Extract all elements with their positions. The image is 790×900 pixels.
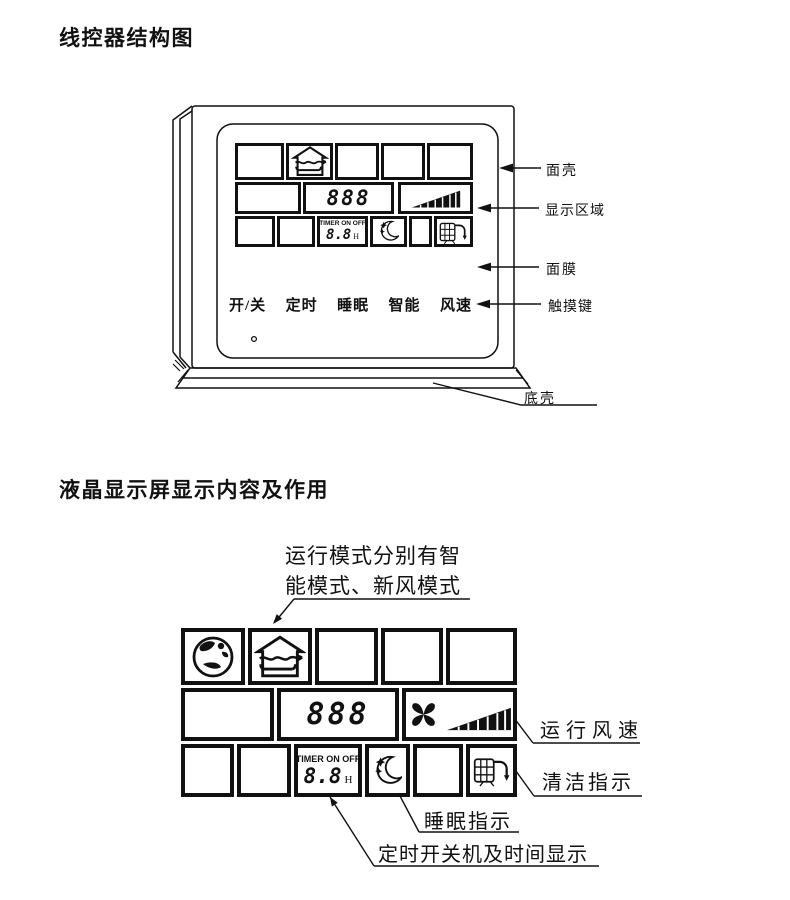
manual-page: { "colors": { "ink": "#111111", "backgro… <box>0 0 790 900</box>
mode-note-line1: 运行模式分别有智 <box>285 541 461 571</box>
mode-note-leader <box>275 599 470 622</box>
section2-title: 液晶显示屏显示内容及作用 <box>59 474 329 504</box>
lcd1-cell-empty <box>427 143 473 180</box>
callout-fan-speed: 运行风速 <box>540 714 644 743</box>
key-smart: 智能 <box>389 294 421 315</box>
fan-blades-icon <box>407 698 440 731</box>
callout-clean: 清洁指示 <box>542 766 634 795</box>
lcd2-timer-value: 8.8 <box>304 766 342 787</box>
lcd2-cell-sleep <box>365 744 410 797</box>
lcd2-timer-unit: H <box>344 775 352 786</box>
lcd2-cell-timer: TIMER ON OFF 8.8 H <box>294 744 362 797</box>
lcd1-cell-empty <box>235 216 275 247</box>
lcd1-cell-empty <box>235 182 301 214</box>
lcd1-cell-temperature: 888 <box>303 182 394 214</box>
lcd1-cell-empty <box>335 143 379 180</box>
section1-title: 线控器结构图 <box>59 22 194 52</box>
lcd2-cell-empty <box>315 628 378 685</box>
sleep-moon-icon <box>374 755 402 787</box>
lcd2-cell-empty <box>181 744 234 797</box>
callout-timer: 定时开关机及时间显示 <box>378 838 588 867</box>
fan-speed-triangle-icon <box>404 187 468 209</box>
lcd2-cell-fan-speed <box>402 688 517 741</box>
lcd2-cell-empty <box>446 628 517 685</box>
fresh-air-house-icon <box>254 635 306 679</box>
lcd1-cell-fan-speed <box>398 182 473 214</box>
fresh-air-house-icon <box>291 146 329 177</box>
lcd1-cell-empty <box>409 216 432 247</box>
callout-touch-keys: 触摸键 <box>548 296 593 316</box>
lcd1-cell-empty <box>277 216 315 247</box>
mode-note: 运行模式分别有智 能模式、新风模式 <box>285 541 461 601</box>
lcd2-cell-empty <box>237 744 291 797</box>
lcd1-cell-empty <box>235 143 284 180</box>
fan-speed-triangle-icon <box>445 703 513 732</box>
lcd1-timer-value: 8.8 <box>326 228 351 242</box>
clean-filter-icon <box>439 219 468 245</box>
lcd1-cell-clean <box>434 216 473 247</box>
callout-sleep: 睡眠指示 <box>424 805 512 834</box>
lcd2-cell-clean <box>466 744 517 797</box>
touch-key-row: 开/关 定时 睡眠 智能 风速 <box>229 294 472 315</box>
sleep-moon-icon <box>379 220 399 243</box>
callout-front-shell: 面壳 <box>546 160 578 180</box>
lcd1-cell-sleep <box>370 216 407 247</box>
lcd2-cell-temperature: 888 <box>277 688 399 741</box>
callout-display-area: 显示区域 <box>545 200 605 220</box>
mode-note-line2: 能模式、新风模式 <box>285 571 461 601</box>
lcd2-cell-empty <box>413 744 463 797</box>
lcd2-cell-empty <box>181 688 274 741</box>
smart-globe-icon <box>191 635 235 679</box>
callout-face-film: 面膜 <box>546 259 578 279</box>
bottom-shell-leader <box>433 383 597 405</box>
key-sleep: 睡眠 <box>337 294 369 315</box>
key-timer: 定时 <box>286 294 318 315</box>
clean-filter-icon <box>473 754 511 787</box>
lcd1-timer-unit: H <box>353 233 359 241</box>
callout-bottom-shell: 底壳 <box>524 388 556 408</box>
key-power: 开/关 <box>229 294 266 315</box>
lcd2-timer-caption: TIMER ON OFF <box>296 755 361 764</box>
lcd2-temp-digits: 888 <box>306 700 369 730</box>
lcd2-cell-smart-mode <box>181 628 245 685</box>
lcd1-cell-timer: TIMER ON OFF 8.8 H <box>317 216 368 247</box>
key-fan-speed: 风速 <box>440 294 472 315</box>
callout-arrowheads-section1 <box>476 164 513 309</box>
lcd1-cell-empty <box>381 143 425 180</box>
indicator-dot <box>252 337 257 342</box>
lcd1-temp-digits: 888 <box>327 188 371 209</box>
lcd2-cell-fresh-air-mode <box>248 628 312 685</box>
lcd2-cell-empty <box>381 628 443 685</box>
lcd1-cell-fresh-air-mode <box>286 143 333 180</box>
